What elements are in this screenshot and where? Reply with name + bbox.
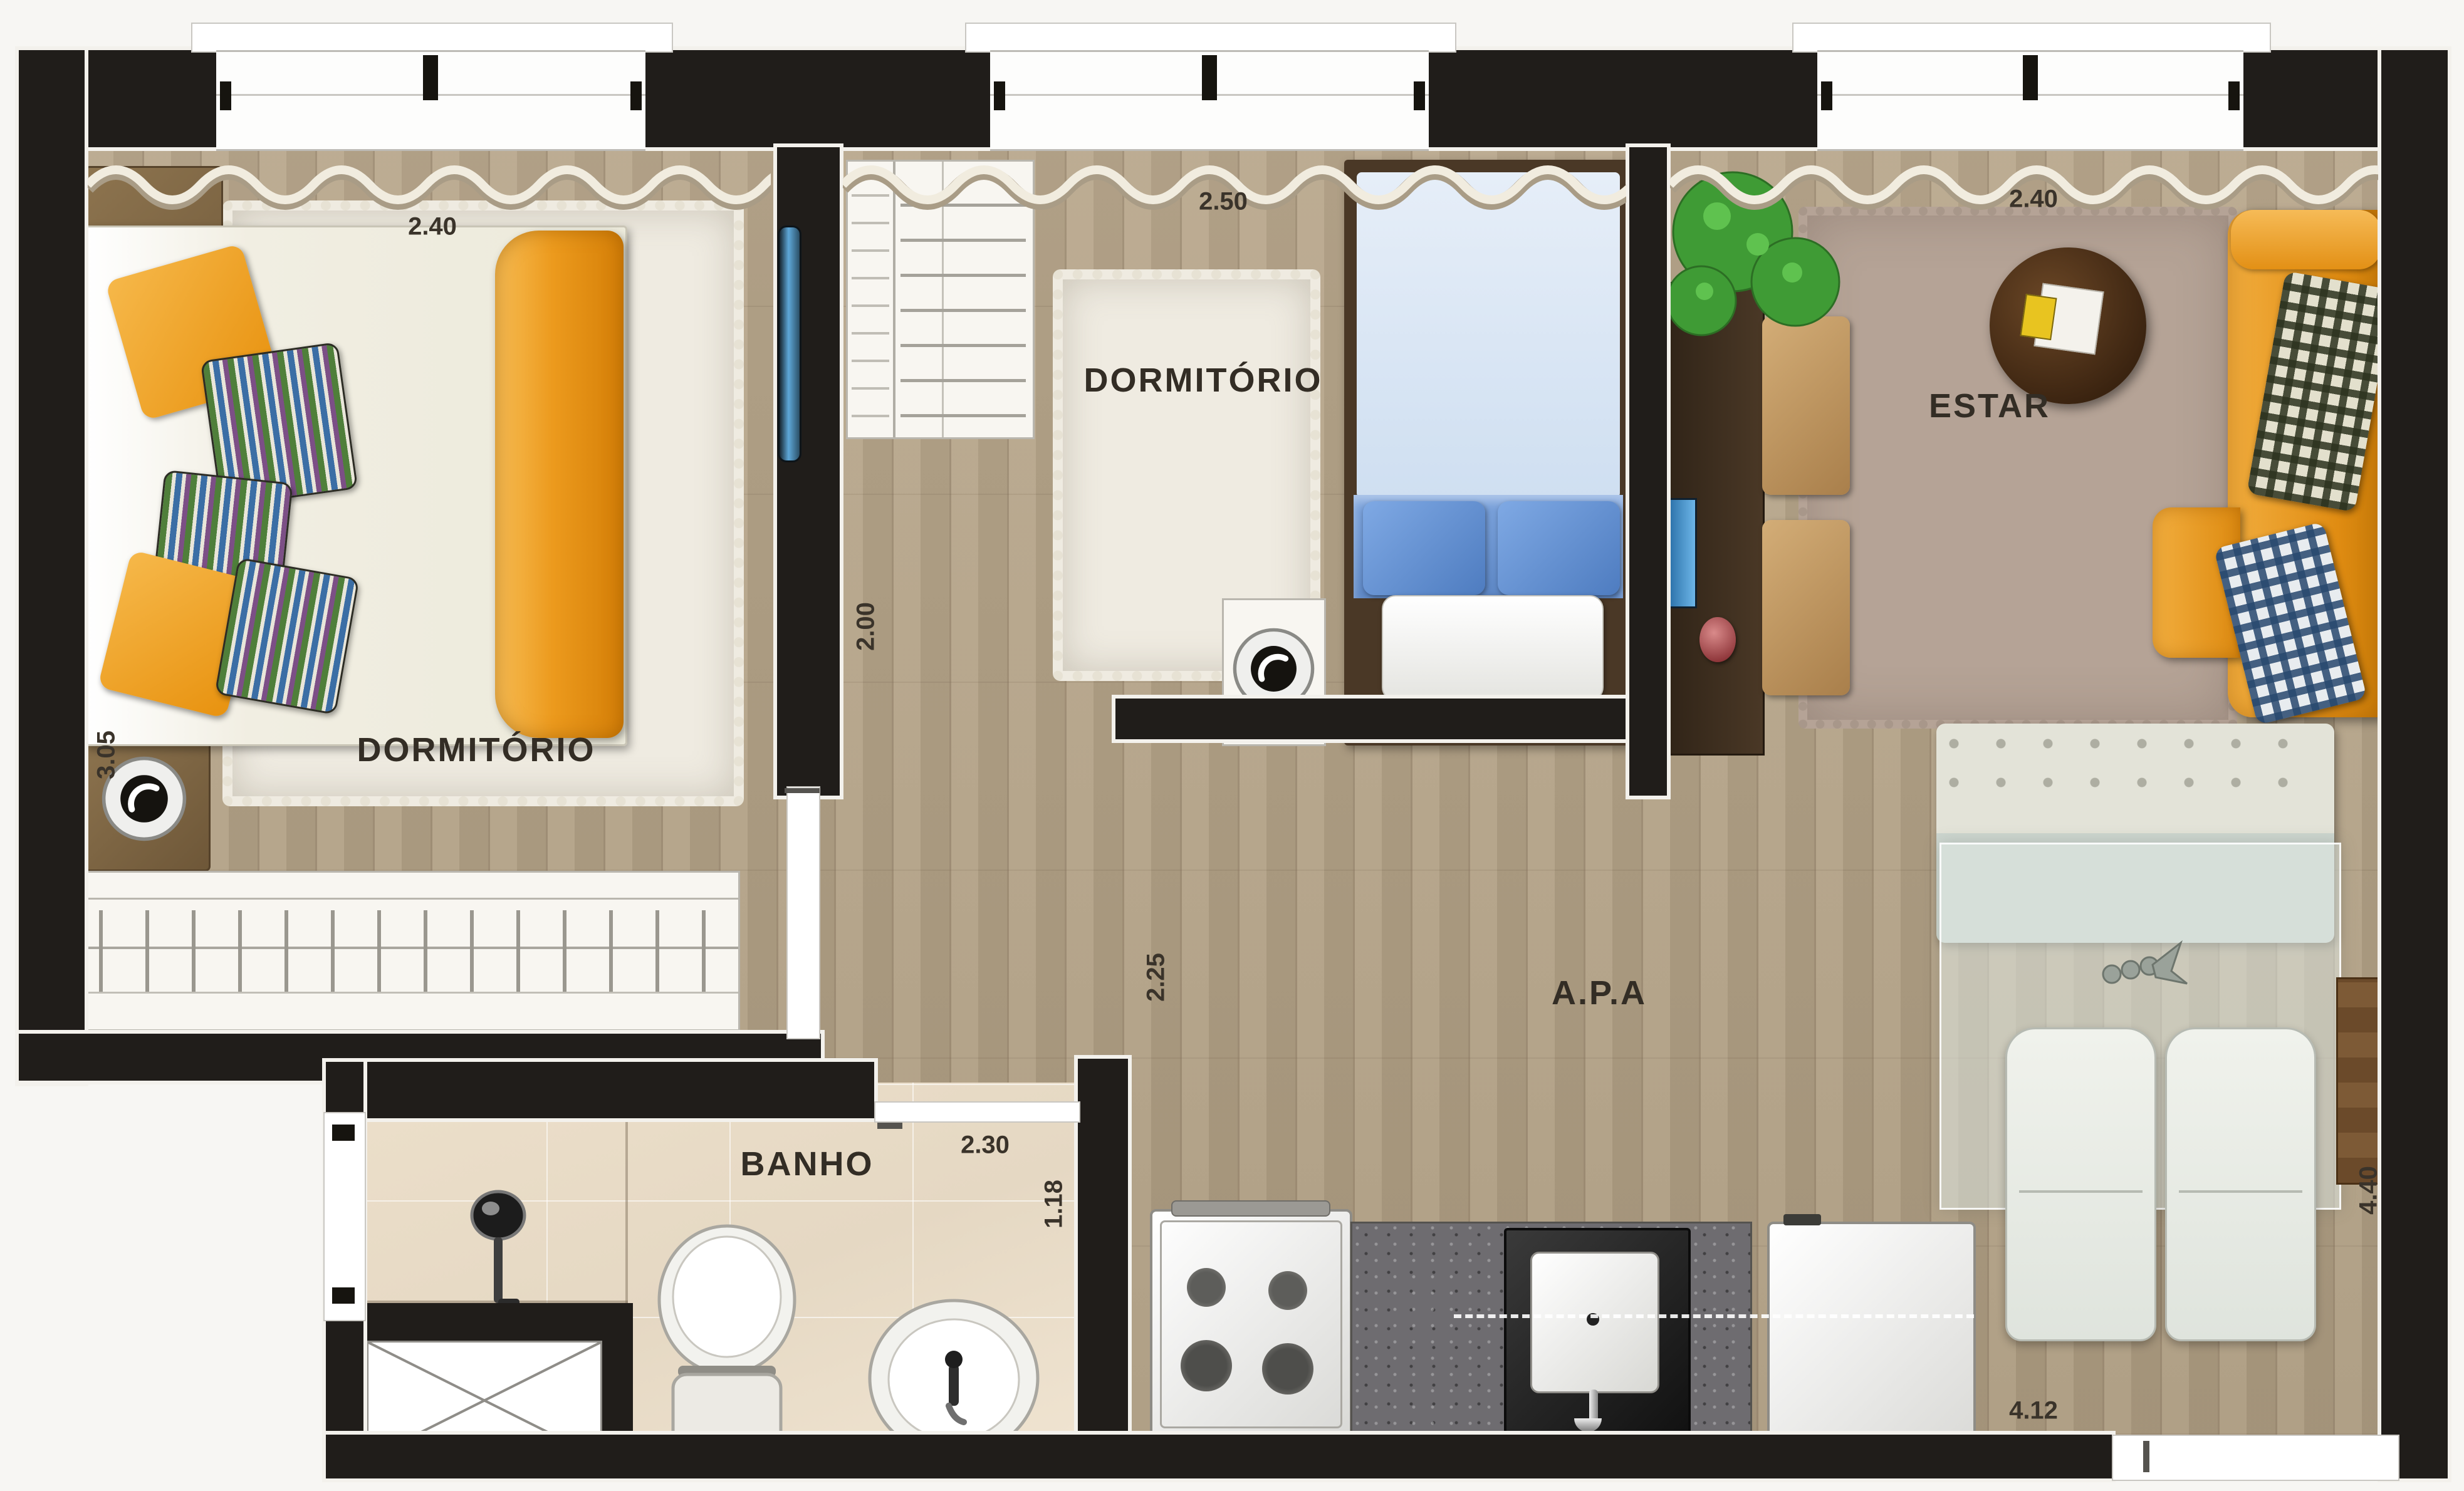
window-edge-mark xyxy=(332,1125,355,1141)
sofa-armrest xyxy=(2231,210,2381,269)
door-hinge-mark xyxy=(785,788,820,793)
tv-icon xyxy=(1667,498,1697,608)
dimension-hall-width: 2.25 xyxy=(1142,953,1171,1002)
burner xyxy=(1262,1343,1313,1395)
window-edge-mark xyxy=(994,81,1005,110)
burner xyxy=(1187,1268,1226,1307)
window-edge-mark xyxy=(630,81,642,110)
wall-top-segment xyxy=(1429,50,1817,147)
room-label-bedroom1: DORMITÓRIO xyxy=(357,730,596,769)
wall-bedroom2-living-divider xyxy=(1629,147,1667,796)
window-mullion xyxy=(2023,55,2038,100)
shower-icon xyxy=(461,1187,542,1319)
bed-duvet-roll xyxy=(495,231,624,738)
wardrobe-icon xyxy=(85,871,740,1031)
table-centerpiece xyxy=(2087,927,2193,1009)
dimension-bedroom2-depth: 2.00 xyxy=(852,602,880,651)
pillow xyxy=(1363,501,1485,595)
window-sill xyxy=(1792,23,2271,53)
window-edge-mark xyxy=(2228,81,2240,110)
balcony-opening xyxy=(2112,1435,2399,1481)
dining-chair xyxy=(2005,1027,2156,1341)
bathroom-door-threshold xyxy=(874,1101,1080,1123)
pillow xyxy=(214,558,359,715)
dimension-living-width: 2.40 xyxy=(2009,185,2058,214)
door-jamb-mark xyxy=(2143,1441,2149,1472)
pillow xyxy=(1382,595,1604,701)
table-book xyxy=(2020,294,2057,340)
dimension-living-depth: 4.40 xyxy=(2355,1166,2383,1215)
window-edge-mark xyxy=(1414,81,1425,110)
bench-cushion xyxy=(1762,520,1850,695)
pillow xyxy=(1498,501,1620,595)
room-label-apartment: A.P.A xyxy=(1552,974,1647,1012)
dimension-bathroom-depth: 1.18 xyxy=(1040,1180,1068,1229)
dimension-kitchen-width: 4.12 xyxy=(2009,1397,2058,1425)
bedroom1-door-opening xyxy=(786,786,820,1039)
counter-dashed-line xyxy=(1454,1314,1974,1318)
burner xyxy=(1268,1271,1307,1310)
decor-vase xyxy=(1699,617,1736,662)
wall-bathroom-top xyxy=(326,1062,874,1118)
burner xyxy=(1181,1340,1232,1391)
window-mullion xyxy=(423,55,438,100)
dimension-bedroom1-depth: 3.05 xyxy=(93,730,121,779)
window-sill xyxy=(191,23,673,53)
dimension-bathroom-width: 2.30 xyxy=(961,1131,1010,1160)
exterior-area xyxy=(0,1081,326,1491)
room-label-living: ESTAR xyxy=(1929,387,2050,425)
wall-bathroom-right xyxy=(1078,1059,1128,1478)
fridge-icon xyxy=(1767,1222,1976,1462)
dimension-bedroom2-width: 2.50 xyxy=(1199,188,1248,216)
door-jamb-mark xyxy=(877,1123,902,1129)
tufting-dots xyxy=(1948,737,2324,813)
room-label-bathroom: BANHO xyxy=(741,1145,874,1183)
bed-mattress xyxy=(1357,172,1620,498)
hanger-marks xyxy=(99,910,726,992)
room-label-bedroom2: DORMITÓRIO xyxy=(1084,361,1323,400)
window-edge-mark xyxy=(1821,81,1832,110)
dining-chair xyxy=(2165,1027,2316,1341)
window-edge-mark xyxy=(332,1287,355,1304)
toilet-icon xyxy=(652,1222,802,1450)
floor-plan: DORMITÓRIO DORMITÓRIO ESTAR BANHO A.P.A … xyxy=(0,0,2464,1491)
wall-left xyxy=(19,50,85,1083)
stove-icon xyxy=(1150,1209,1352,1440)
wall-right xyxy=(2381,50,2448,1478)
curtain xyxy=(88,153,771,210)
wall-top-segment xyxy=(645,50,990,147)
window-mullion xyxy=(1202,55,1217,100)
wall-bedroom2-bottom xyxy=(1115,699,1629,739)
window-sill xyxy=(965,23,1456,53)
dimension-bedroom1-width: 2.40 xyxy=(408,213,457,241)
console-table xyxy=(2336,977,2388,1185)
sink-icon xyxy=(1504,1228,1691,1440)
window-edge-mark xyxy=(220,81,231,110)
sliding-door-panel xyxy=(778,226,801,462)
wall-bottom xyxy=(326,1435,2112,1478)
